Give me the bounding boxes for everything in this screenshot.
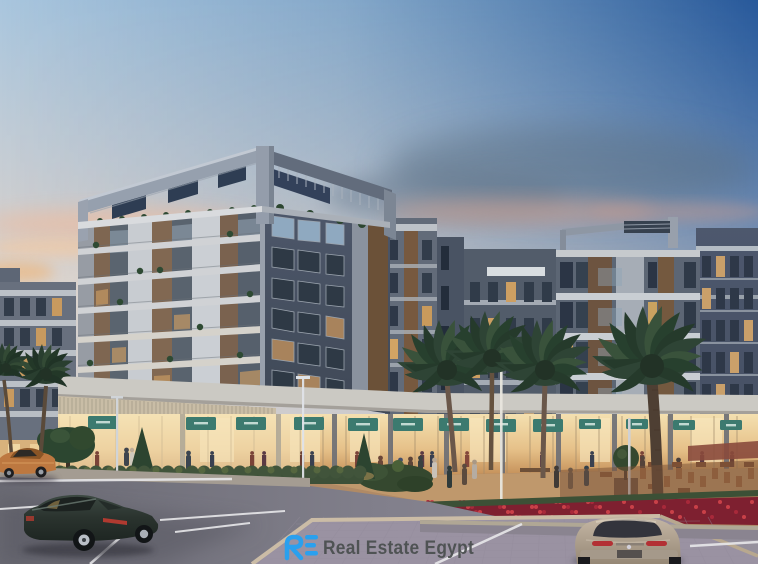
svg-text:Real Estate Egypt: Real Estate Egypt	[323, 538, 474, 559]
